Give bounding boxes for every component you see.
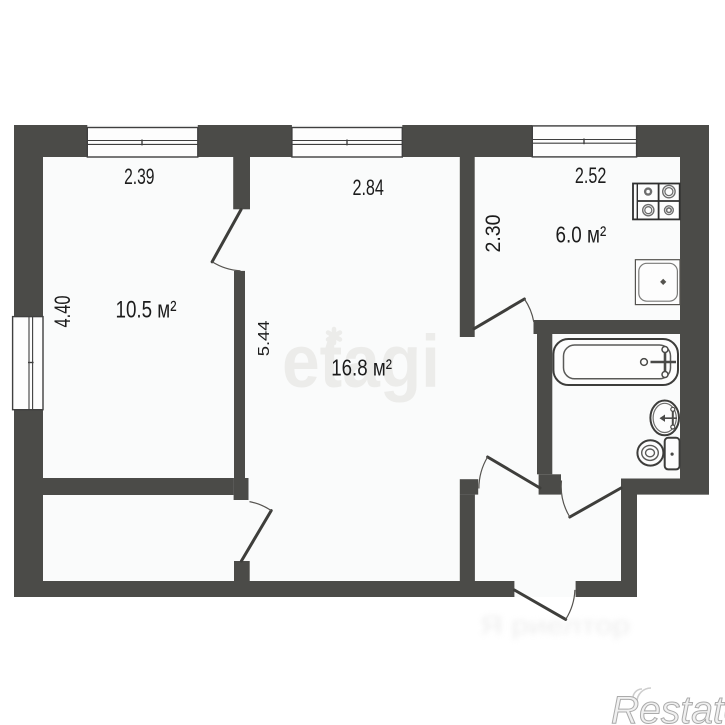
svg-text:2.30: 2.30 <box>482 215 505 253</box>
svg-text:2.39: 2.39 <box>124 164 154 189</box>
svg-text:5.44: 5.44 <box>256 320 273 356</box>
svg-text:16.8 м²: 16.8 м² <box>331 355 392 381</box>
svg-text:4.40: 4.40 <box>50 296 75 328</box>
svg-text:Restate: Restate <box>611 689 725 725</box>
svg-text:6.0 м²: 6.0 м² <box>556 222 607 248</box>
svg-text:2.52: 2.52 <box>575 163 606 188</box>
svg-text:Я риелтор: Я риелтор <box>480 610 630 640</box>
svg-text:2.84: 2.84 <box>352 175 384 200</box>
svg-text:10.5 м²: 10.5 м² <box>116 297 177 324</box>
